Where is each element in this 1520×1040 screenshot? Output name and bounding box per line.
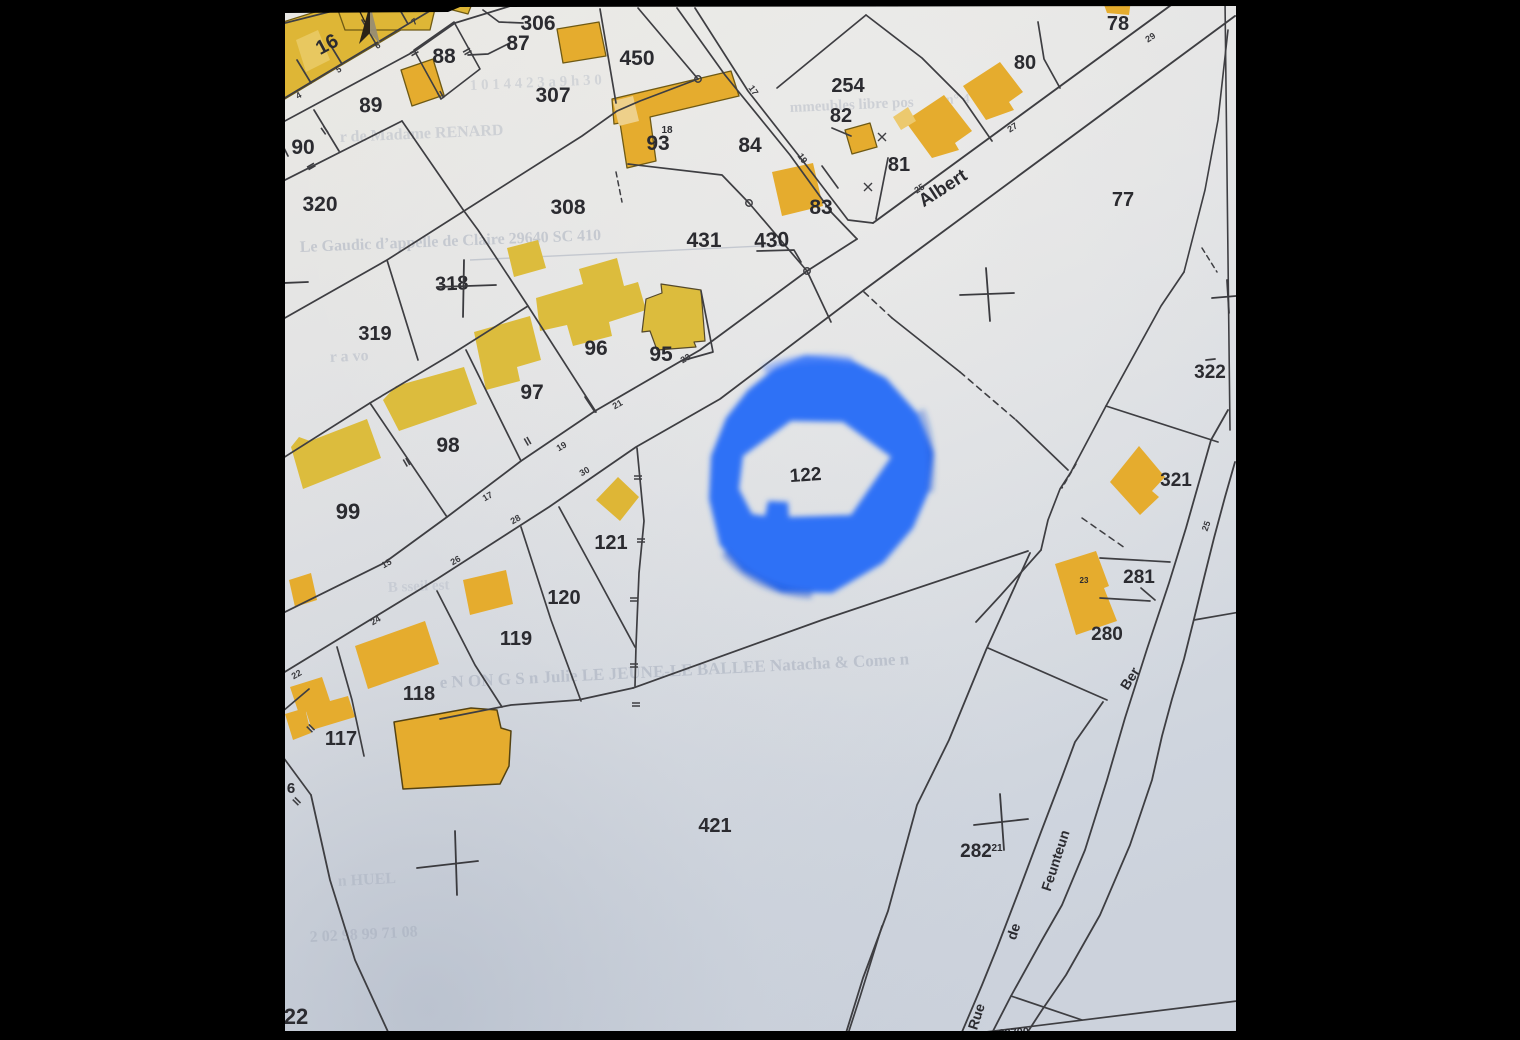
svg-text:118: 118 — [403, 683, 435, 705]
svg-text:99: 99 — [336, 499, 360, 524]
svg-text:254: 254 — [831, 75, 865, 97]
svg-text:88: 88 — [432, 45, 456, 68]
svg-text:96: 96 — [584, 337, 607, 360]
svg-text:307: 307 — [535, 84, 570, 107]
svg-text:18: 18 — [661, 125, 673, 136]
svg-text:97: 97 — [520, 381, 543, 404]
svg-text:80: 80 — [1014, 52, 1036, 74]
svg-text:82: 82 — [830, 105, 852, 127]
svg-text:r a vo: r a vo — [329, 347, 369, 366]
svg-text:119: 119 — [500, 628, 532, 650]
svg-text:81: 81 — [888, 154, 910, 176]
svg-text:431: 431 — [686, 229, 721, 252]
svg-text:77: 77 — [1112, 189, 1134, 211]
svg-text:120: 120 — [547, 587, 580, 609]
svg-text:87: 87 — [506, 32, 529, 55]
svg-text:430: 430 — [754, 228, 790, 253]
svg-text:122: 122 — [789, 464, 822, 487]
svg-text:78: 78 — [1107, 13, 1129, 35]
svg-text:319: 319 — [358, 323, 391, 345]
svg-text:89: 89 — [359, 94, 383, 118]
svg-text:90: 90 — [291, 136, 314, 159]
svg-text:B sseil est: B sseil est — [387, 577, 449, 596]
svg-text:95: 95 — [649, 343, 673, 366]
svg-text:321: 321 — [1160, 470, 1192, 491]
svg-text:83: 83 — [809, 196, 832, 219]
svg-text:308: 308 — [550, 196, 585, 219]
svg-text:450: 450 — [619, 47, 654, 70]
svg-text:121: 121 — [594, 532, 627, 554]
svg-text:322: 322 — [1194, 362, 1226, 383]
svg-text:282: 282 — [960, 841, 992, 862]
svg-text:421: 421 — [698, 815, 731, 837]
svg-text:6: 6 — [287, 780, 295, 797]
svg-text:281: 281 — [1123, 567, 1155, 588]
svg-text:n HUEL: n HUEL — [337, 870, 396, 890]
svg-text:117: 117 — [325, 728, 357, 750]
svg-text:98: 98 — [436, 434, 460, 457]
svg-text:84: 84 — [738, 134, 762, 157]
svg-text:280: 280 — [1091, 624, 1123, 645]
svg-text:21: 21 — [991, 843, 1003, 854]
svg-text:23: 23 — [1080, 576, 1089, 585]
svg-text:22: 22 — [284, 1004, 308, 1029]
svg-text:306: 306 — [520, 12, 555, 35]
svg-text:320: 320 — [302, 193, 337, 216]
